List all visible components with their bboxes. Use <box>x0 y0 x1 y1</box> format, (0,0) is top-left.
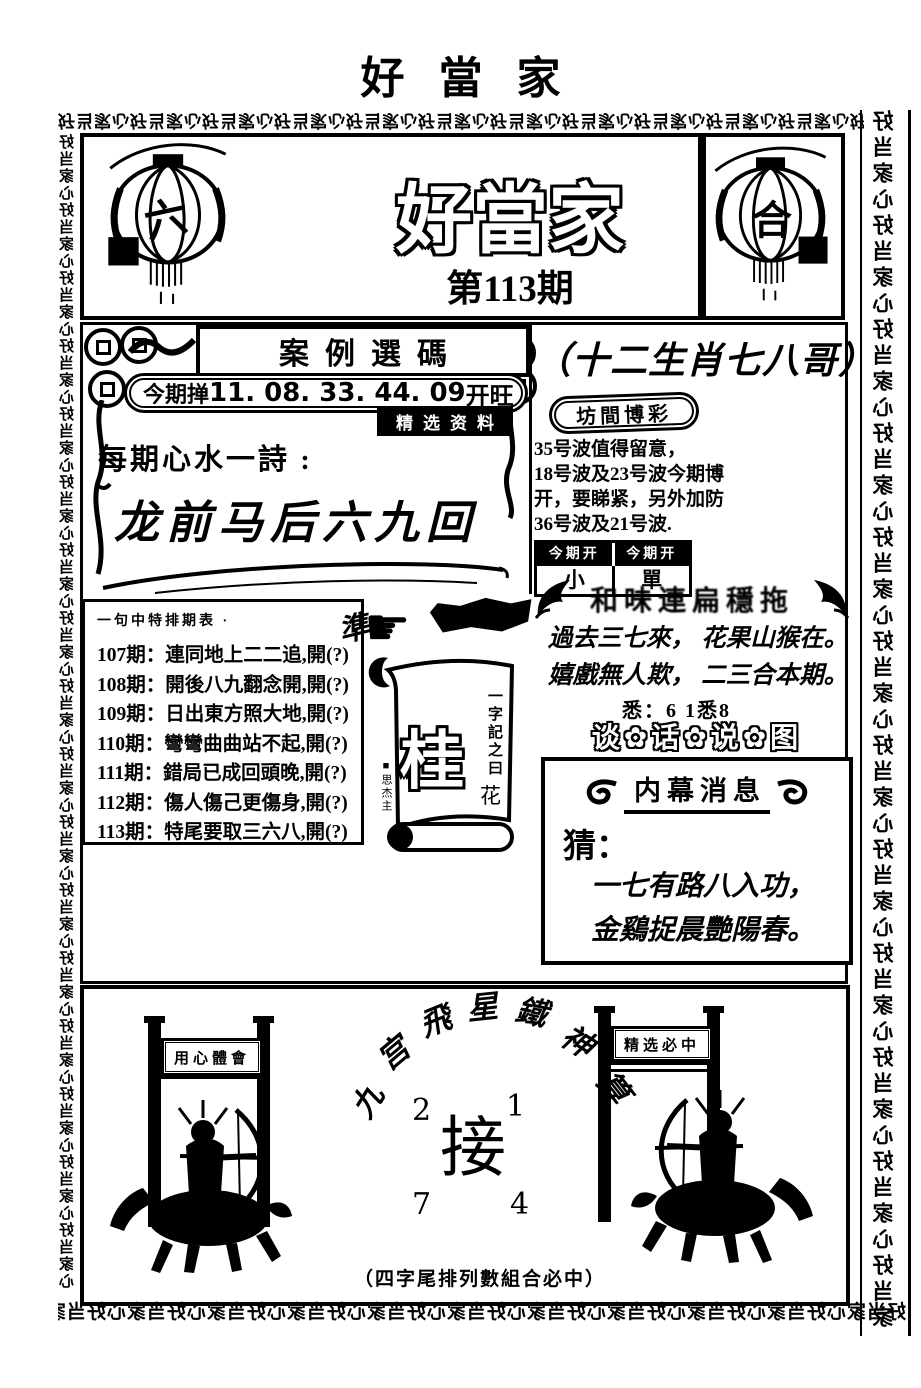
insider-poem: 一七有路八入功， 金鷄捉晨艷陽春。 <box>591 865 815 953</box>
center-char: 接 <box>440 1116 506 1182</box>
history-row: 109期：日出東方照大地,開(?) <box>97 700 355 730</box>
border-strip-right: 好当家心好当家心好当家心好当家心好当家心好当家心好当家心好当家心好当家心好当家心… <box>860 110 911 1336</box>
lottery-sheet-page: 好當家 好当家心好当家心好当家心好当家心好当家心好当家心好当家心好当家心好当家心… <box>0 0 921 1388</box>
masthead-title: 好當家 <box>330 158 690 268</box>
warrior-icon <box>88 1068 338 1273</box>
curl-icon <box>776 778 810 806</box>
insider-header: 内幕消息 <box>545 769 849 814</box>
gate-cap <box>144 1016 165 1023</box>
scroll-big-char: 桂 <box>400 710 464 802</box>
wing-banner: 和味連扁穩拖 <box>534 576 850 622</box>
history-row: 110期：彎彎曲曲站不起,開(?) <box>97 730 355 760</box>
scroll-graphic: 桂 一字記之曰 花 ■思杰主 <box>358 648 526 866</box>
wing-banner-text: 和味連扁穩拖 <box>590 579 794 619</box>
history-row: 112期：傷人傷己更傷身,開(?) <box>97 789 355 819</box>
table-header-cell: 今期开 <box>537 543 615 566</box>
wing-icon <box>534 578 572 620</box>
insider-box: 内幕消息 猜： 一七有路八入功， 金鷄捉晨艷陽春。 <box>541 757 853 965</box>
swoosh-icon <box>95 556 515 598</box>
tip-line: 18号波及23号波今期博 <box>534 462 784 487</box>
gambling-oval-badge: 坊間博彩 <box>548 391 699 434</box>
scroll-signature: ■思杰主 <box>378 760 394 813</box>
bottom-caption: （四字尾排列數組合必中） <box>320 1264 640 1291</box>
tip-line: 开，要睇紧，另外加防 <box>534 487 784 512</box>
gate-cap <box>703 1006 724 1013</box>
history-row: 108期：開後八九翻念開,開(?) <box>97 671 355 701</box>
ribbon-icon <box>88 400 116 576</box>
history-row: 111期：錯局已成回頭晚,開(?) <box>97 759 355 789</box>
wave-tips: 35号波值得留意， 18号波及23号波今期博 开，要睇紧，另外加防 36号波及2… <box>534 437 784 537</box>
gate-cap <box>253 1016 274 1023</box>
page-title: 好當家 <box>327 42 595 106</box>
right-plaque-text: 精选必中 <box>624 1034 700 1055</box>
insider-poem-line: 金鷄捉晨艷陽春。 <box>591 909 815 953</box>
grid-number: 1 <box>506 1092 525 1122</box>
gambling-oval-label: 坊間博彩 <box>576 397 673 429</box>
warrior-icon <box>585 1058 835 1263</box>
weekly-poem: 龙前马后六九回 <box>114 486 478 551</box>
lantern-right: 合 <box>698 138 843 310</box>
section-header-label: 案例選碼 <box>263 329 463 373</box>
left-plaque-text: 用心體會 <box>174 1047 250 1068</box>
masthead-issue: 第113期 <box>330 258 690 312</box>
zodiac-poem: 過去三七來， 花果山猴在。 嬉戲無人欺， 二三合本期。 <box>548 620 848 694</box>
history-box: 一句中特排期表 · 107期：連同地上二二追,開(?) 108期：開後八九翻念開… <box>82 599 364 845</box>
pointing-hand-icon: ☛ <box>364 602 411 654</box>
history-title: 一句中特排期表 · <box>97 610 355 630</box>
pick-label: 今期掸 <box>143 377 209 409</box>
arc-title-char: 星 <box>465 990 499 1024</box>
ribbon-icon <box>128 332 198 358</box>
gate-cap <box>594 1006 615 1013</box>
insider-title: 内幕消息 <box>624 769 770 814</box>
table-header-cell: 今期开 <box>615 543 690 566</box>
lantern-left: 六 <box>88 138 248 310</box>
guess-label: 猜： <box>563 819 629 867</box>
border-strip-top: 好当家心好当家心好当家心好当家心好当家心好当家心好当家心好当家心好当家心好当家心… <box>58 108 864 132</box>
border-strip-left: 好当家心好当家心好当家心好当家心好当家心好当家心好当家心好当家心好当家心好当家心… <box>58 134 78 1298</box>
scroll-side-text: 一字記之曰 <box>484 688 505 778</box>
tip-line: 36号波及21号波. <box>534 512 784 537</box>
pick-numbers: 11. 08. 33. 44. 09 <box>209 378 466 408</box>
arc-title-char: 鐵 <box>513 994 550 1031</box>
zodiac-poem-line: 嬉戲無人欺， 二三合本期。 <box>548 657 848 694</box>
coin-icon <box>84 328 122 366</box>
tip-line: 35号波值得留意， <box>534 437 784 462</box>
zodiac-poem-line: 過去三七來， 花果山猴在。 <box>548 620 848 657</box>
zodiac-title: （十二生肖七八哥） <box>534 330 846 384</box>
grid-number: 7 <box>412 1190 431 1220</box>
section-header-left: 案例選碼 <box>196 325 530 377</box>
scroll-side-char: 花 <box>480 780 501 810</box>
pick-suffix: 开旺 <box>466 376 514 411</box>
insider-poem-line: 一七有路八入功， <box>591 865 815 909</box>
grid-number: 2 <box>412 1096 431 1126</box>
right-gate-plaque: 精选必中 <box>611 1026 713 1062</box>
grid-number: 4 <box>510 1190 529 1220</box>
flower-banner: 谈✿话✿说✿图 <box>552 716 842 756</box>
lantern-right-char: 合 <box>752 188 792 246</box>
selected-material-badge: 精选资料 <box>377 407 513 436</box>
poem-label: 每期心水一詩 : <box>98 436 313 478</box>
wing-icon <box>812 578 850 620</box>
curl-icon <box>584 778 618 806</box>
history-row: 107期：連同地上二二追,開(?) <box>97 641 355 671</box>
history-row: 113期：特尾要取三六八,開(?) <box>97 818 355 848</box>
